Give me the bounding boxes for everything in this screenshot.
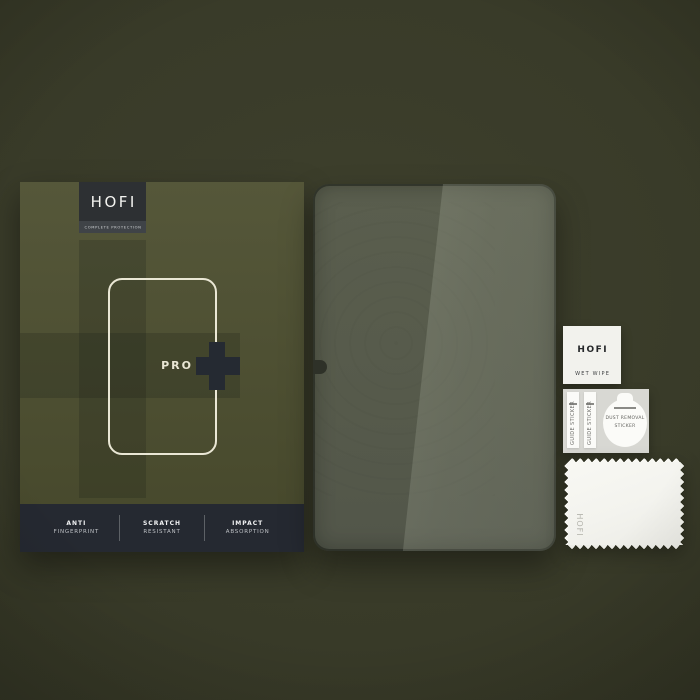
cloth-zigzag-edge-top <box>568 458 680 462</box>
brand-logo-plate: HOFI COMPLETE PROTECTION <box>79 182 146 233</box>
feature-impact-absorption: IMPACT ABSORPTION <box>205 519 290 537</box>
sticker-sheet: GUIDE STICKER GUIDE STICKER DUST REMOVAL… <box>563 389 649 453</box>
dust-removal-label-line1: DUST REMOVAL <box>603 415 647 423</box>
brand-logo: HOFI <box>79 182 146 221</box>
feature-line1: SCRATCH <box>120 519 205 529</box>
plus-icon-horizontal <box>196 357 240 375</box>
feature-line1: ANTI <box>34 519 119 529</box>
series-label: PRO <box>145 359 193 372</box>
sticker-pull-line <box>614 407 636 409</box>
dust-removal-sticker-label: DUST REMOVAL STICKER <box>603 415 647 430</box>
wet-wipe-sachet: HOFI WET WIPE <box>563 326 621 384</box>
feature-line1: IMPACT <box>205 519 290 529</box>
guide-sticker: GUIDE STICKER <box>567 392 579 448</box>
feature-line2: FINGERPRINT <box>34 528 119 537</box>
feature-line2: ABSORPTION <box>205 528 290 537</box>
guide-sticker: GUIDE STICKER <box>584 392 596 448</box>
feature-anti-fingerprint: ANTI FINGERPRINT <box>34 519 119 537</box>
dust-removal-label-line2: STICKER <box>603 423 647 431</box>
cloth-zigzag-edge-left <box>564 462 568 545</box>
feature-line2: RESISTANT <box>120 528 205 537</box>
glass-screen-protector <box>313 184 556 551</box>
cloth-zigzag-edge-bottom <box>568 545 680 549</box>
cloth-zigzag-edge-right <box>680 462 684 545</box>
cloth-surface <box>568 462 680 545</box>
product-photo-stage: HOFI COMPLETE PROTECTION PRO ANTI FINGER… <box>0 0 700 700</box>
camera-notch-tab <box>313 360 327 374</box>
guide-sticker-label: GUIDE STICKER <box>570 401 576 445</box>
cloth-brand: HOFI <box>574 510 584 540</box>
guide-sticker-label: GUIDE STICKER <box>587 401 593 445</box>
wet-wipe-label: WET WIPE <box>563 371 621 377</box>
brand-tagline-text: COMPLETE PROTECTION <box>84 225 141 229</box>
dust-removal-sticker: DUST REMOVAL STICKER <box>603 393 647 449</box>
wet-wipe-brand: HOFI <box>563 345 621 355</box>
feature-scratch-resistant: SCRATCH RESISTANT <box>120 519 205 537</box>
product-box: HOFI COMPLETE PROTECTION PRO ANTI FINGER… <box>20 182 304 552</box>
microfiber-cloth: HOFI <box>564 458 684 549</box>
brand-tagline: COMPLETE PROTECTION <box>79 221 146 233</box>
features-bar: ANTI FINGERPRINT SCRATCH RESISTANT IMPAC… <box>20 504 304 552</box>
